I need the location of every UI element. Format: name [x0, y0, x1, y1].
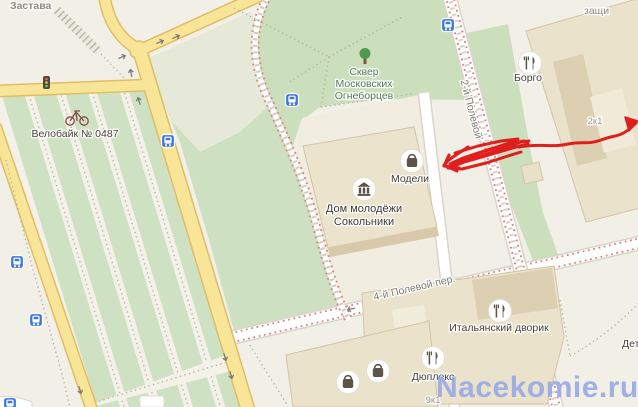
bike-station-label: Велобайк № 0487	[31, 128, 118, 140]
restaurant-icon[interactable]	[422, 347, 445, 370]
map-screenshot: Застава защи Дет Велобайк № 0487 Сквер М…	[0, 0, 638, 407]
cutoff-label-chip	[140, 396, 164, 407]
poi-label-borgo[interactable]: Борго	[514, 72, 542, 84]
museum-icon[interactable]	[353, 178, 376, 201]
bus-stop-icon[interactable]	[442, 19, 455, 32]
building-number-2k1: 2к1	[588, 116, 603, 127]
shopping-bag-icon[interactable]	[367, 360, 390, 383]
bus-stop-icon[interactable]	[11, 256, 24, 269]
poi-label-modeli[interactable]: Модели	[391, 173, 429, 185]
bus-stop-icon[interactable]	[162, 135, 175, 148]
watermark: Nacekomie.ru	[436, 371, 638, 404]
bus-stop-icon[interactable]	[286, 94, 299, 107]
bus-stop-icon[interactable]	[30, 314, 43, 327]
poi-label-dom-molodezhi[interactable]: Дом молодёжи Сокольники	[326, 203, 402, 228]
svg-text:Сквер: Сквер	[349, 66, 378, 78]
small-building	[521, 162, 543, 184]
district-label: Застава	[10, 0, 52, 12]
bus-stop-icon[interactable]	[4, 398, 17, 407]
partial-label-bottom-right: Дет	[622, 338, 638, 350]
poi-label-italian[interactable]: Итальянский дворик	[449, 322, 549, 334]
svg-text:Сокольники: Сокольники	[334, 216, 394, 228]
shopping-bag-icon[interactable]	[337, 371, 360, 394]
svg-text:Московских: Московских	[336, 78, 394, 90]
svg-text:Дом молодёжи: Дом молодёжи	[326, 203, 402, 215]
map-canvas[interactable]: Застава защи Дет Велобайк № 0487 Сквер М…	[0, 0, 638, 407]
partial-label-top-right: защи	[584, 5, 609, 17]
shopping-bag-icon[interactable]	[401, 150, 424, 173]
svg-text:Огнеборцев: Огнеборцев	[335, 90, 394, 102]
traffic-light-icon	[43, 76, 50, 89]
restaurant-icon[interactable]	[489, 300, 512, 323]
